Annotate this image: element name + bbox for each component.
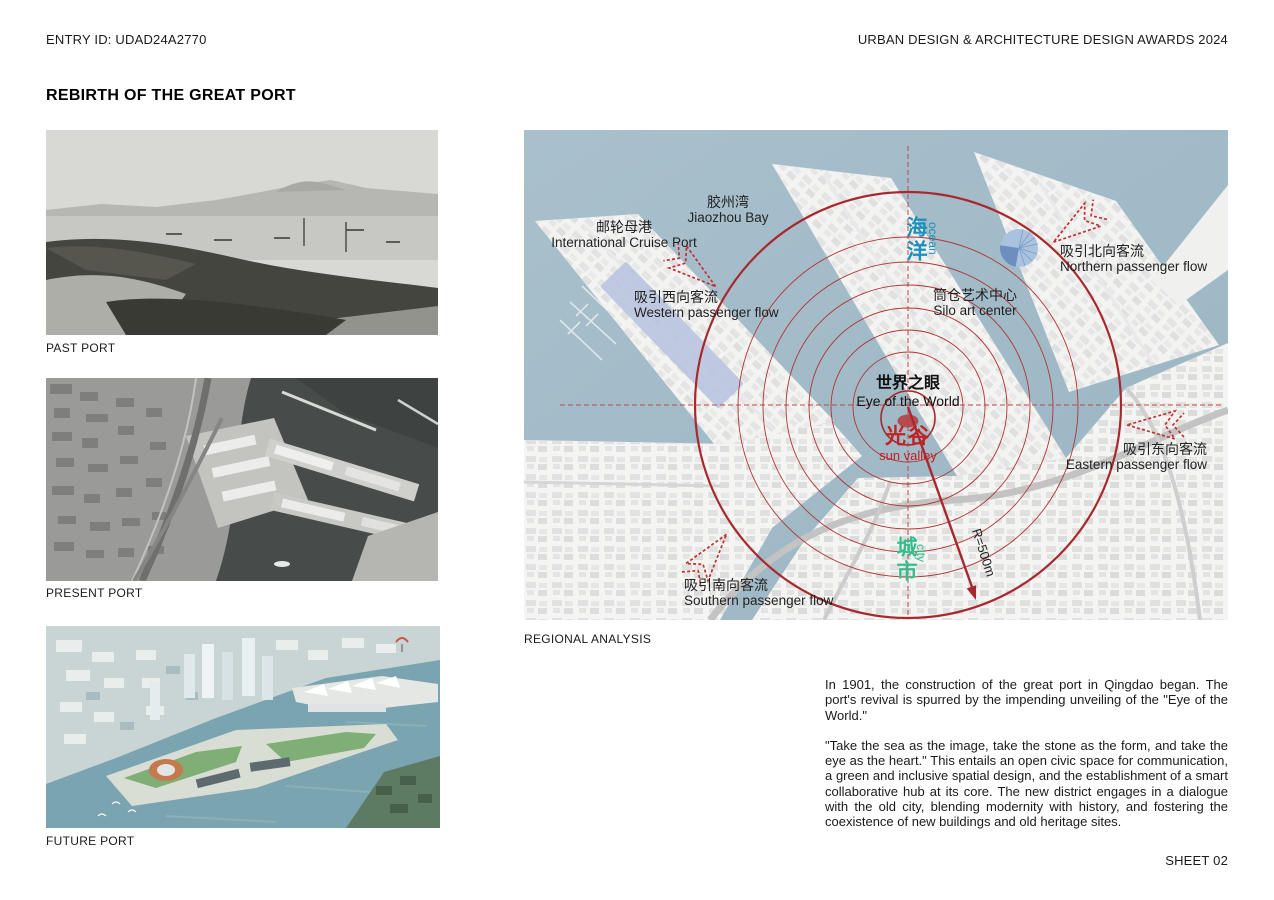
sheet-number: SHEET 02	[1165, 853, 1228, 868]
label-silo-art-center: 筒仓艺术中心 Silo art center	[885, 287, 1065, 319]
present-port-caption: PRESENT PORT	[46, 586, 143, 600]
future-port-caption: FUTURE PORT	[46, 834, 134, 848]
description-block: In 1901, the construction of the great p…	[825, 677, 1228, 845]
past-port-caption: PAST PORT	[46, 341, 115, 355]
award-title: URBAN DESIGN & ARCHITECTURE DESIGN AWARD…	[858, 32, 1228, 47]
label-cruise-port: 邮轮母港 International Cruise Port	[514, 219, 734, 251]
regional-analysis-map: 胶州湾 Jiaozhou Bay 邮轮母港 International Crui…	[524, 130, 1228, 620]
label-ocean-en: ocean	[926, 222, 940, 255]
present-port-photo	[46, 378, 438, 581]
label-eastern-flow: 吸引东向客流 Eastern passenger flow	[967, 441, 1207, 473]
presentation-sheet: ENTRY ID: UDAD24A2770 URBAN DESIGN & ARC…	[0, 0, 1274, 900]
label-eye-of-the-world: 世界之眼 Eye of the World	[808, 375, 1008, 409]
map-caption: REGIONAL ANALYSIS	[524, 632, 651, 646]
description-paragraph-1: In 1901, the construction of the great p…	[825, 677, 1228, 723]
past-port-photo	[46, 130, 438, 335]
page-title: REBIRTH OF THE GREAT PORT	[46, 87, 296, 105]
description-paragraph-2: "Take the sea as the image, take the sto…	[825, 738, 1228, 830]
label-western-flow: 吸引西向客流 Western passenger flow	[634, 289, 779, 321]
future-port-photo	[46, 626, 440, 828]
label-sun-valley: 光谷 sun valley	[828, 425, 988, 464]
entry-id: ENTRY ID: UDAD24A2770	[46, 32, 207, 47]
label-southern-flow: 吸引南向客流 Southern passenger flow	[684, 577, 833, 609]
label-city-en: city	[914, 544, 928, 562]
silo-art-center-icon	[1000, 229, 1038, 267]
label-northern-flow: 吸引北向客流 Northern passenger flow	[1060, 243, 1207, 275]
